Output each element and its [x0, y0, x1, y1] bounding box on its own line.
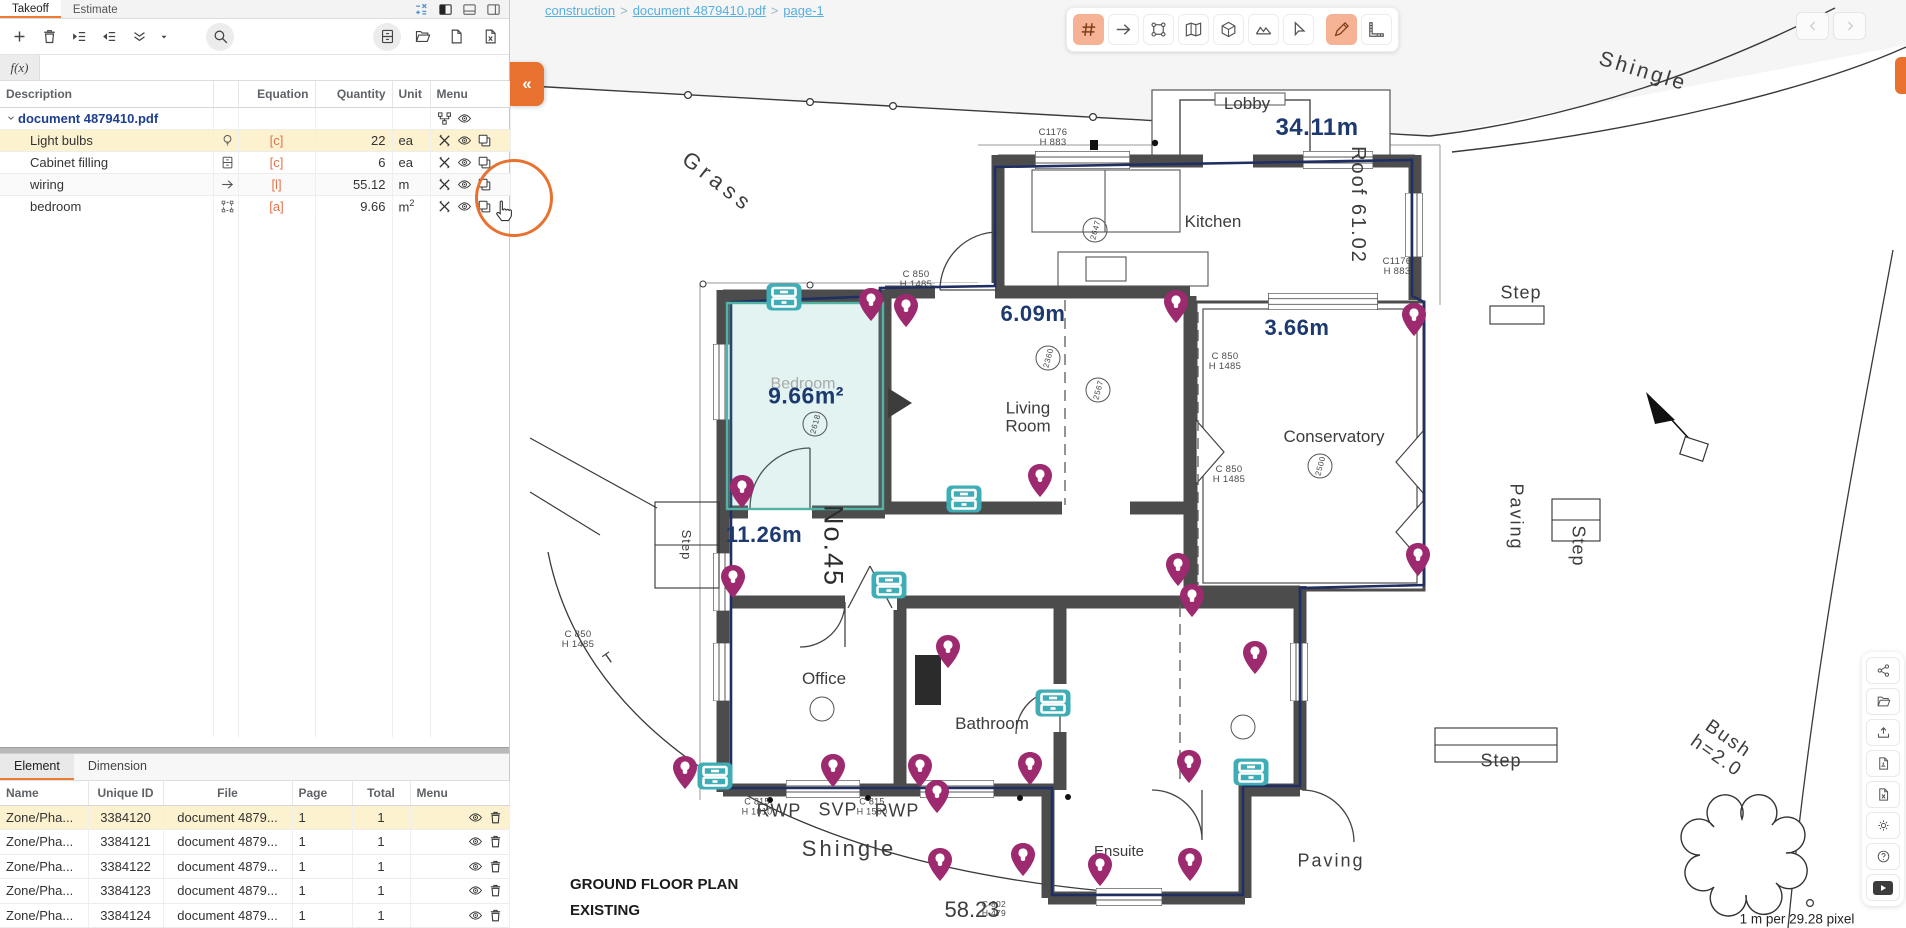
breadcrumb-document-link[interactable]: document 4879410.pdf: [633, 3, 766, 18]
element-table: Name Unique ID File Page Total Menu Zone…: [0, 781, 510, 928]
delete-icon[interactable]: [488, 883, 503, 898]
scissors-icon[interactable]: [437, 177, 452, 192]
scissors-icon[interactable]: [437, 199, 452, 214]
share-button[interactable]: [1866, 657, 1900, 684]
delete-icon[interactable]: [488, 908, 503, 923]
panel-resize-handle[interactable]: [0, 747, 509, 754]
tab-element[interactable]: Element: [0, 754, 74, 780]
table-row-bedroom[interactable]: bedroom [a] 9.66 m2: [0, 195, 510, 217]
col-menu: Menu: [430, 81, 510, 107]
delete-icon[interactable]: [488, 859, 503, 874]
new-file-button[interactable]: [443, 24, 469, 50]
visibility-icon[interactable]: [457, 177, 472, 192]
takeoff-app: { "left_panel": { "tabs": [ {"label":"Ta…: [0, 0, 1906, 928]
area-icon: [220, 199, 235, 214]
visibility-icon[interactable]: [468, 810, 483, 825]
outdent-button[interactable]: [96, 24, 122, 50]
panel-tab-bar: Takeoff Estimate: [0, 0, 509, 19]
polygon-tool-button[interactable]: [1143, 14, 1174, 45]
takeoff-panel: Takeoff Estimate f(x) Description: [0, 0, 510, 928]
panel-collapse-button[interactable]: «: [510, 62, 544, 106]
delete-icon[interactable]: [488, 810, 503, 825]
right-panel-expand-tab[interactable]: [1895, 57, 1906, 94]
canvas-side-toolbar: [1862, 652, 1904, 906]
add-item-button[interactable]: [6, 24, 32, 50]
search-button[interactable]: [206, 23, 234, 51]
north-arrow: [1646, 392, 1708, 461]
table-empty-area: [0, 217, 508, 737]
expand-icon[interactable]: [6, 111, 18, 126]
layout-left-icon[interactable]: [438, 2, 453, 17]
next-page-button[interactable]: [1833, 12, 1866, 40]
tab-estimate[interactable]: Estimate: [61, 0, 130, 18]
duplicate-icon[interactable]: [477, 177, 492, 192]
scissors-icon[interactable]: [437, 133, 452, 148]
element-tab-bar: Element Dimension: [0, 754, 509, 781]
pencil-tool-button[interactable]: [1326, 14, 1357, 45]
arrow-line-icon: [220, 177, 235, 192]
line-tool-button[interactable]: [1108, 14, 1139, 45]
surface-tool-button[interactable]: [1248, 14, 1279, 45]
cabinet-icon: [220, 155, 235, 170]
open-file-button[interactable]: [409, 24, 435, 50]
col-quantity: Quantity: [315, 81, 392, 107]
more-options-caret[interactable]: [156, 24, 172, 50]
indent-button[interactable]: [66, 24, 92, 50]
ruler-tool-button[interactable]: [1361, 14, 1392, 45]
tab-dimension[interactable]: Dimension: [74, 754, 161, 780]
visibility-icon[interactable]: [468, 908, 483, 923]
hierarchy-icon[interactable]: [437, 111, 452, 126]
volume-tool-button[interactable]: [1213, 14, 1244, 45]
layout-bottom-icon[interactable]: [462, 2, 477, 17]
select-tool-button[interactable]: [1283, 14, 1314, 45]
visibility-icon[interactable]: [457, 199, 472, 214]
breadcrumb: construction>document 4879410.pdf>page-1: [543, 3, 826, 18]
duplicate-icon[interactable]: [477, 155, 492, 170]
collapse-all-button[interactable]: [126, 24, 152, 50]
col-description: Description: [0, 81, 213, 107]
cabinet-view-button[interactable]: [373, 23, 401, 51]
previous-page-button[interactable]: [1796, 12, 1829, 40]
pdf-export-button[interactable]: [1866, 750, 1900, 777]
takeoff-toolbar: [0, 19, 509, 55]
col-equation: Equation: [238, 81, 315, 107]
element-row[interactable]: Zone/Pha... 3384120 document 4879... 1 1: [0, 805, 509, 830]
tab-takeoff[interactable]: Takeoff: [0, 0, 61, 18]
visibility-icon[interactable]: [468, 883, 483, 898]
youtube-button[interactable]: [1866, 874, 1900, 901]
breadcrumb-page-link[interactable]: page-1: [783, 3, 823, 18]
element-row[interactable]: Zone/Pha... 3384122 document 4879... 1 1: [0, 854, 509, 879]
element-row[interactable]: Zone/Pha... 3384121 document 4879... 1 1: [0, 830, 509, 855]
table-row-cabinet-filling[interactable]: Cabinet filling [c] 6 ea: [0, 151, 510, 173]
calculator-icon[interactable]: [414, 2, 429, 17]
scissors-icon[interactable]: [437, 155, 452, 170]
settings-button[interactable]: [1866, 812, 1900, 839]
fx-label: f(x): [0, 55, 40, 80]
export-excel-button[interactable]: [477, 24, 503, 50]
element-row[interactable]: Zone/Pha... 3384124 document 4879... 1 1: [0, 903, 509, 928]
element-panel: Element Dimension Name Unique ID File Pa…: [0, 747, 509, 928]
help-button[interactable]: [1866, 843, 1900, 870]
light-bulb-icon: [220, 133, 235, 148]
map-tool-button[interactable]: [1178, 14, 1209, 45]
visibility-icon[interactable]: [457, 111, 472, 126]
count-tool-button[interactable]: [1073, 14, 1104, 45]
formula-bar[interactable]: f(x): [0, 55, 509, 81]
col-unit: Unit: [392, 81, 430, 107]
layout-right-icon[interactable]: [486, 2, 501, 17]
upload-button[interactable]: [1866, 719, 1900, 746]
table-row-wiring[interactable]: wiring [l] 55.12 m: [0, 173, 510, 195]
visibility-icon[interactable]: [457, 133, 472, 148]
delete-item-button[interactable]: [36, 24, 62, 50]
delete-icon[interactable]: [488, 834, 503, 849]
visibility-icon[interactable]: [468, 859, 483, 874]
duplicate-icon[interactable]: [477, 133, 492, 148]
duplicate-icon[interactable]: [477, 199, 492, 214]
breadcrumb-project-link[interactable]: construction: [545, 3, 615, 18]
page-navigation: [1796, 12, 1866, 40]
open-folder-button[interactable]: [1866, 688, 1900, 715]
visibility-icon[interactable]: [468, 834, 483, 849]
takeoff-table: Description Equation Quantity Unit Menu …: [0, 81, 511, 218]
table-row-light-bulbs[interactable]: Light bulbs [c] 22 ea: [0, 129, 510, 151]
table-row-document[interactable]: document 4879410.pdf: [0, 107, 510, 129]
drawing-tool-palette: [1066, 7, 1399, 52]
visibility-icon[interactable]: [457, 155, 472, 170]
excel-export-button[interactable]: [1866, 781, 1900, 808]
element-row[interactable]: Zone/Pha... 3384123 document 4879... 1 1: [0, 879, 509, 904]
